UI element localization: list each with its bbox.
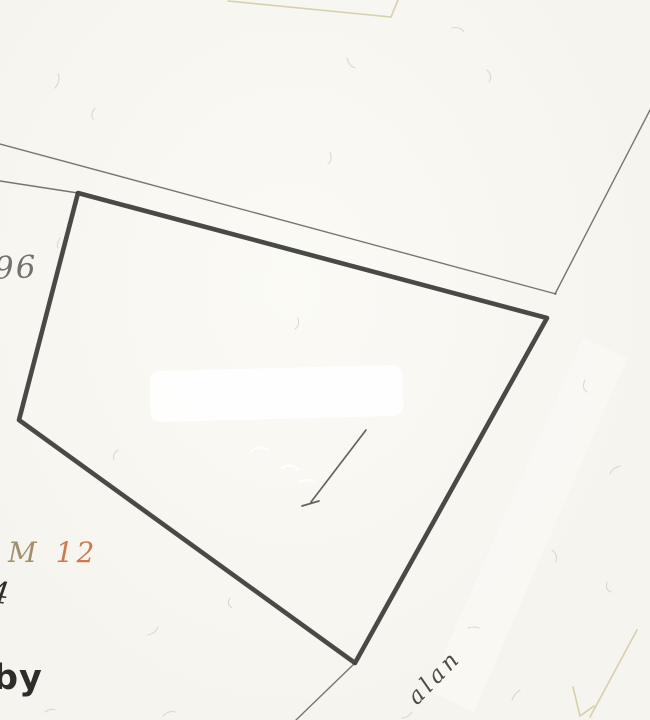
pen-mark (302, 430, 366, 506)
faint-outline-bottom-right-a (573, 687, 594, 716)
scanned-survey-map: 96 M12 4 by alan (0, 0, 650, 720)
partial-word-by: by (0, 658, 43, 698)
block-label-prefix: M (8, 536, 40, 569)
road-edge-line-right (555, 110, 650, 294)
adjacent-parcel-outline-top (228, 0, 398, 17)
faint-outline-bottom-right-b (590, 630, 637, 717)
road-edge-line-upper (0, 144, 556, 294)
parcel-boundary (19, 193, 547, 663)
map-canvas-svg (0, 0, 650, 720)
boundary-extension-line (296, 663, 355, 720)
parcel-number-96: 96 (0, 249, 38, 286)
block-label-m12: M12 (8, 536, 97, 569)
white-erase-patch (149, 365, 403, 423)
ghost-marks (250, 447, 314, 482)
road-edge-line-inner (0, 181, 78, 193)
block-label-number: 12 (56, 536, 98, 569)
